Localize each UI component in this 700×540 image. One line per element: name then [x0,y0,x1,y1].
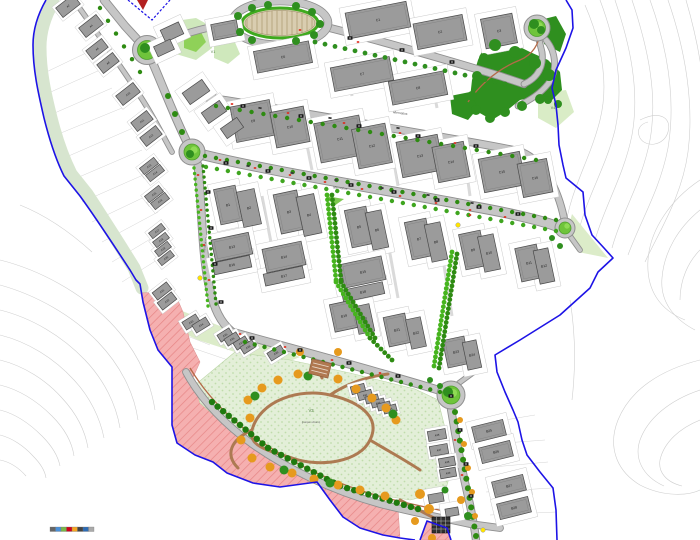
scale-bar-cell [72,527,78,532]
tree-icon [226,169,230,173]
contour-line [648,180,700,320]
tree-icon [370,332,375,337]
sign-dot [349,37,350,38]
tree-icon [331,254,336,259]
tree-icon [473,533,479,539]
tree-icon [455,200,459,204]
scale-bar-cell [50,527,56,532]
sign-dot [207,191,208,192]
tree-icon [269,177,273,181]
tree-icon [203,186,206,189]
tree-icon [292,352,296,356]
tree-icon [343,296,348,301]
tree-icon [479,53,489,63]
tree-icon [336,254,341,259]
tree-icon [334,375,343,384]
parcel-line [72,150,142,180]
tree-icon [452,409,458,415]
tree-icon [348,304,353,309]
tree-icon [313,40,318,45]
tree-icon [356,128,360,132]
tree-icon [532,214,536,218]
tree-icon [212,280,215,283]
tree-icon [309,120,313,124]
tree-icon [464,512,472,520]
red-mark [343,122,345,124]
tree-icon [445,311,450,316]
contour-line [628,0,671,255]
tree-icon [196,199,199,202]
tree-icon [179,129,185,135]
tree-icon [334,280,339,285]
tree-icon [334,348,342,356]
tree-icon [455,211,459,215]
tree-icon [447,297,452,302]
tree-icon [248,4,256,12]
tree-icon [329,230,334,235]
tree-icon [445,315,450,320]
tree-icon [465,465,471,471]
tree-icon [328,226,333,231]
tree-icon [438,323,443,328]
red-mark [219,159,221,161]
tree-icon [106,19,110,23]
tree-icon [172,111,178,117]
red-mark [435,202,437,204]
red-mark [469,209,471,211]
tree-icon [469,489,475,495]
tree-icon [483,77,488,82]
tree-icon [333,226,338,231]
tree-icon [437,327,442,332]
tree-icon [344,485,350,491]
tree-icon [452,270,457,275]
tree-icon [220,408,226,414]
tree-icon [278,452,284,458]
tree-icon [475,148,479,152]
tree-icon [488,206,492,210]
tree-icon [454,256,459,261]
tree-icon [485,113,495,123]
building-label: C3 [497,29,502,34]
tree-icon [280,168,284,172]
roundabout-island [559,222,571,234]
red-mark [287,112,289,114]
tree-icon [433,207,437,211]
red-mark [469,214,471,216]
tree-icon [358,312,363,317]
tree-icon [331,249,336,254]
tree-icon [438,356,443,361]
contour-line [638,390,700,486]
tree-icon [408,504,414,510]
tree-icon [304,466,310,472]
tree-icon [379,375,383,379]
tree-icon [358,320,363,325]
tree-icon [195,188,198,191]
tree-icon [437,383,443,389]
tree-icon [444,198,448,202]
tree-icon [411,517,419,525]
tree-icon [330,240,335,245]
tree-icon [346,292,351,297]
tree-icon [450,284,455,289]
tree-icon [389,377,393,381]
red-mark [331,359,333,361]
scale-bar-cell [78,527,84,532]
tree-icon [292,2,300,10]
tree-icon [351,300,356,305]
tree-icon [316,20,324,28]
tree-icon [165,93,171,99]
tree-icon [463,476,469,482]
park-label: V4 [551,106,555,110]
tree-icon [214,297,217,300]
tree-icon [360,370,364,374]
tree-icon [334,481,343,490]
sign-dot [220,301,221,302]
tree-icon [214,104,218,108]
tree-icon [205,288,208,291]
tree-icon [557,243,563,249]
tree-icon [338,273,343,278]
roundabout-island-highlight [564,223,569,228]
tree-icon [332,211,337,216]
tree-icon [435,341,440,346]
tree-icon [331,202,336,207]
tree-icon [242,426,248,432]
tree-icon [202,175,205,178]
contour-line [0,385,74,456]
sign-dot [517,213,518,214]
contour-line [595,0,635,240]
tree-icon [444,320,449,325]
tree-icon [412,203,416,207]
tree-icon [436,336,441,341]
tree-icon [380,132,384,136]
tree-icon [439,142,443,146]
tree-icon [382,404,391,413]
scale-bar-cell [56,527,62,532]
contour-line [20,205,92,252]
tree-icon [291,181,295,185]
tree-icon [367,184,371,188]
tree-icon [333,268,338,273]
tree-icon [213,286,216,289]
tree-icon [403,136,407,140]
tree-icon [471,523,477,529]
sign-dot [450,395,451,396]
scale-bar-cell [61,527,67,532]
tree-icon [434,350,439,355]
tree-icon [98,6,102,10]
tree-icon [310,31,318,39]
tree-icon [437,332,442,337]
tree-icon [199,233,202,236]
sign-dot [465,463,466,464]
tree-icon [201,164,204,167]
tree-icon [327,216,332,221]
tree-icon [333,44,338,49]
tree-icon [210,258,213,261]
tree-icon [411,192,415,196]
tree-icon [341,292,346,297]
tree-icon [211,269,214,272]
contour-line [660,420,700,486]
sign-dot [251,337,252,338]
tree-icon [213,291,216,294]
sign-dot [300,115,301,116]
tree-icon [246,414,255,423]
sign-dot [225,162,226,163]
tree-icon [467,91,477,101]
red-mark [284,346,286,348]
tree-icon [214,302,217,305]
tree-icon [441,338,446,343]
tree-icon [549,235,555,241]
tree-icon [393,57,398,62]
tree-icon [202,170,205,173]
tree-icon [353,312,358,317]
contour-line [0,285,138,420]
tree-icon [438,390,442,394]
contour-line [686,0,700,160]
tree-icon [327,211,332,216]
tree-icon [460,457,466,463]
building-label: C9 [251,119,256,124]
street-label: alternativa [333,185,348,191]
tree-icon [444,286,449,291]
tree-icon [442,487,449,494]
tree-icon [444,209,448,213]
tree-icon [186,150,194,158]
contour-line [0,435,46,478]
tree-icon [196,205,199,208]
tree-icon [202,266,205,269]
tree-icon [335,240,340,245]
red-mark [399,195,401,197]
tree-icon [449,254,454,259]
contour-line [570,300,574,400]
tree-icon [441,304,446,309]
tree-icon [262,345,266,349]
tree-icon [510,154,514,158]
red-mark [289,174,291,176]
tree-icon [330,245,335,250]
tree-icon [375,343,380,348]
contour-line [0,335,104,438]
tree-icon [423,64,428,69]
tree-icon [368,130,372,134]
tree-icon [447,268,452,273]
sign-dot [393,191,394,192]
contour-line [565,5,604,230]
tree-icon [390,358,395,363]
tree-icon [466,202,470,206]
tree-icon [209,242,212,245]
contour-line [645,0,690,262]
tree-icon [409,382,413,386]
tree-icon [363,320,368,325]
tree-icon [442,334,447,339]
tree-icon [203,154,207,158]
tree-icon [498,152,502,156]
tree-icon [325,193,330,198]
tree-icon [339,280,344,285]
tree-icon [337,263,342,268]
tree-icon [249,110,253,114]
tree-icon [202,260,205,263]
tree-icon [204,197,207,200]
tree-icon [543,227,547,231]
tree-icon [450,279,455,284]
tree-icon [415,506,421,512]
tree-icon [330,197,335,202]
tree-icon [209,399,215,405]
tree-icon [401,201,405,205]
tree-icon [343,46,348,51]
tree-icon [328,221,333,226]
tree-icon [343,288,348,293]
tree-icon [379,197,383,201]
tree-icon [326,202,331,207]
tree-icon [440,309,445,314]
tree-icon [280,179,284,183]
tree-icon [282,350,286,354]
tree-icon [427,140,431,144]
tree-icon [346,191,350,195]
yellow-mark [481,528,486,533]
tree-icon [433,354,438,359]
tree-icon [353,48,358,53]
tree-icon [208,231,211,234]
tree-icon [285,116,289,120]
tree-icon [193,177,196,180]
tree-icon [428,387,432,391]
sign-dot [308,177,309,178]
tree-icon [517,101,527,111]
tree-icon [204,277,207,280]
tree-icon [357,193,361,197]
tree-icon [442,329,447,334]
tree-icon [205,293,208,296]
sign-dot [299,349,300,350]
tree-icon [254,436,260,442]
sign-dot [470,495,471,496]
tree-icon [554,229,558,233]
parcel-line [56,108,122,135]
tree-icon [337,259,342,264]
red-mark [454,439,456,441]
contour-line [680,250,700,300]
tree-icon [208,236,211,239]
tree-icon [477,215,481,219]
tree-icon [332,259,337,264]
tree-icon [373,53,378,58]
tree-icon [447,263,452,268]
tree-icon [203,271,206,274]
tree-icon [332,124,336,128]
red-mark [239,333,241,335]
boundary-dashed-line [128,0,170,20]
tree-icon [197,216,200,219]
tree-icon [248,36,256,44]
red-mark [461,474,463,476]
tree-icon [446,272,451,277]
contour-line [0,460,26,476]
tree-icon [458,447,464,453]
tree-icon [360,324,365,329]
street-label: alternativa [393,110,408,116]
red-mark [361,188,363,190]
tree-icon [265,445,271,451]
tree-icon [499,219,503,223]
tree-icon [248,454,257,463]
tree-icon [439,352,444,357]
tree-icon [210,253,213,256]
tree-icon [207,220,210,223]
park-label: V1 [211,50,215,54]
tree-icon [312,174,316,178]
red-mark [399,132,401,134]
tree-icon [440,313,445,318]
tree-icon [138,70,142,74]
tree-icon [439,318,444,323]
tree-icon [463,146,467,150]
tree-icon [437,366,442,371]
tree-icon [415,489,425,499]
tree-icon [258,175,262,179]
tree-icon [335,245,340,250]
tree-icon [206,299,209,302]
red-mark [208,279,210,281]
tree-icon [394,500,400,506]
tree-icon [338,288,343,293]
tree-icon [424,504,434,514]
tree-icon [324,187,328,191]
tree-icon [468,504,474,510]
tree-icon [351,308,356,313]
tree-icon [440,343,445,348]
tree-icon [231,417,237,423]
scale-bar-cell [89,527,95,532]
tree-icon [340,365,344,369]
parcel-line [64,128,133,158]
tree-icon [355,316,360,321]
site-plan-page: C1C2C3C6C7C8C9C10C11C12C13C14C15C16B1B2B… [0,0,700,540]
contour-line [662,210,700,330]
red-mark [504,216,506,218]
tree-icon [451,274,456,279]
tree-icon [291,459,297,465]
red-mark [379,372,381,374]
tree-icon [237,422,243,428]
tree-icon [325,197,330,202]
tree-icon [461,441,467,447]
tree-icon [326,479,335,488]
tree-icon [237,171,241,175]
tree-icon [448,293,453,298]
tree-icon [455,252,460,257]
tree-icon [453,261,458,266]
tree-icon [214,156,218,160]
tree-icon [333,221,338,226]
tree-icon [333,273,338,278]
tree-icon [381,492,390,501]
tree-icon [313,185,317,189]
tree-icon [238,108,242,112]
tree-icon [489,39,501,51]
